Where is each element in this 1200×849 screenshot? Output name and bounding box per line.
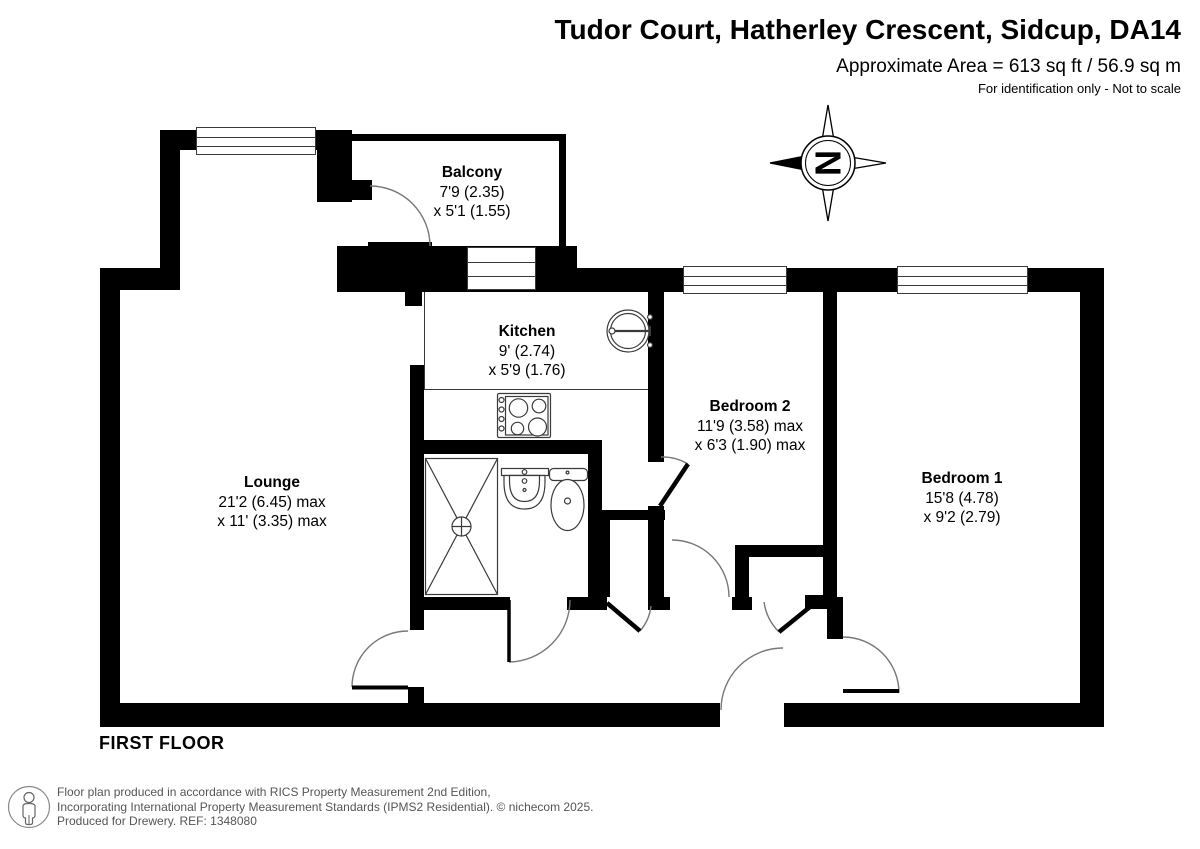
shower-tray <box>426 459 498 595</box>
door-arc <box>352 631 408 687</box>
window-pane-line <box>684 276 786 277</box>
hob <box>498 394 551 438</box>
compass-south-point <box>819 168 837 221</box>
window <box>467 247 536 290</box>
room-size: 7'9 (2.35) <box>362 183 582 203</box>
room-size: 15'8 (4.78) <box>852 489 1072 509</box>
door-arc <box>672 540 729 597</box>
window-pane-line <box>468 276 535 277</box>
door-arc <box>721 648 783 710</box>
wall <box>368 242 432 249</box>
room-size: x 5'9 (1.76) <box>417 361 637 381</box>
wall <box>100 268 120 727</box>
wall <box>100 703 720 727</box>
wall <box>567 597 607 610</box>
footer-line: Floor plan produced in accordance with R… <box>57 785 593 800</box>
wall <box>1080 268 1104 727</box>
person-icon <box>7 784 51 830</box>
room-size: 11'9 (3.58) max <box>640 417 860 437</box>
approximate-area: Approximate Area = 613 sq ft / 56.9 sq m <box>836 56 1181 78</box>
page-title: Tudor Court, Hatherley Crescent, Sidcup,… <box>555 14 1182 46</box>
room-name: Bedroom 2 <box>640 397 860 417</box>
room-size: x 6'3 (1.90) max <box>640 436 860 456</box>
floor-label: FIRST FLOOR <box>99 733 225 754</box>
toilet <box>550 469 588 531</box>
door-arc <box>764 602 779 632</box>
wall <box>408 687 424 705</box>
room-name: Bedroom 1 <box>852 469 1072 489</box>
wall <box>410 597 510 610</box>
washbasin <box>502 469 549 510</box>
wall <box>317 130 352 202</box>
wall <box>805 595 828 609</box>
wall <box>784 703 1080 727</box>
wall <box>598 518 610 597</box>
window-pane-line <box>468 262 535 263</box>
compass-east-point <box>833 154 886 172</box>
door-arc <box>509 600 570 662</box>
wall <box>735 545 828 557</box>
wall <box>350 134 566 141</box>
room-name: Kitchen <box>417 322 637 342</box>
room-size: x 9'2 (2.79) <box>852 508 1072 528</box>
window-pane-line <box>197 146 315 147</box>
room-size: 9' (2.74) <box>417 342 637 362</box>
window-pane-line <box>898 276 1027 277</box>
room-name: Balcony <box>362 163 582 183</box>
counter-line <box>424 389 648 390</box>
compass-north-point <box>819 105 837 158</box>
footer-line: Incorporating International Property Mea… <box>57 800 593 815</box>
compass-rose: N <box>770 105 886 221</box>
door-leaves <box>352 464 899 691</box>
footer-text: Floor plan produced in accordance with R… <box>57 785 593 829</box>
window <box>196 127 316 155</box>
room-name: Lounge <box>162 473 382 493</box>
room-label-lounge: Lounge 21'2 (6.45) max x 11' (3.35) max <box>162 473 382 532</box>
wall <box>732 597 752 610</box>
room-size: x 5'1 (1.55) <box>362 202 582 222</box>
disclaimer-note: For identification only - Not to scale <box>978 81 1181 96</box>
door-leaf <box>607 603 640 631</box>
room-size: 21'2 (6.45) max <box>162 493 382 513</box>
window-pane-line <box>197 137 315 138</box>
wall <box>337 246 577 292</box>
door-arc <box>843 637 899 693</box>
floorplan-page: Tudor Court, Hatherley Crescent, Sidcup,… <box>0 0 1200 849</box>
room-label-bedroom-1: Bedroom 1 15'8 (4.78) x 9'2 (2.79) <box>852 469 1072 528</box>
door-leaf <box>660 464 688 506</box>
room-label-balcony: Balcony 7'9 (2.35) x 5'1 (1.55) <box>362 163 582 222</box>
footer-line: Produced for Drewery. REF: 1348080 <box>57 814 593 829</box>
wall <box>735 557 749 597</box>
wall <box>160 130 180 282</box>
door-arc <box>661 457 688 464</box>
window-pane-line <box>684 285 786 286</box>
wall <box>648 506 664 597</box>
wall <box>410 440 592 454</box>
window <box>683 266 787 294</box>
compass-west-point <box>770 152 825 174</box>
compass-letter: N <box>808 150 849 176</box>
room-size: x 11' (3.35) max <box>162 512 382 532</box>
wall <box>827 597 843 639</box>
wall <box>648 597 670 610</box>
wall <box>410 365 424 630</box>
window-pane-line <box>898 285 1027 286</box>
wall <box>405 290 422 306</box>
room-label-bedroom-2: Bedroom 2 11'9 (3.58) max x 6'3 (1.90) m… <box>640 397 860 456</box>
window <box>897 266 1028 294</box>
room-label-kitchen: Kitchen 9' (2.74) x 5'9 (1.76) <box>417 322 637 381</box>
